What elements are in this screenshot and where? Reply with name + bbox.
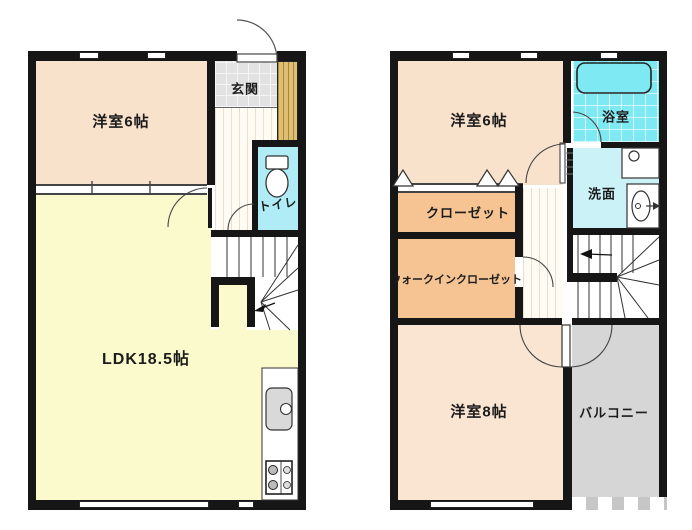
window	[238, 501, 254, 508]
wall-segment	[515, 184, 523, 257]
room-bath	[573, 61, 659, 142]
room-toilet	[258, 147, 298, 230]
wall-segment	[28, 51, 237, 61]
wall-segment	[659, 51, 667, 497]
label-closet: クローゼット	[426, 203, 510, 222]
wall-segment	[572, 318, 667, 325]
floorplan-canvas: 洋室6帖 玄関 トイレ LDK18.5帖 洋室6帖 浴室 洗面 クローゼット ウ…	[0, 0, 692, 530]
label-wic: ウォークインクローゼット	[390, 271, 522, 287]
wall-segment	[567, 148, 573, 228]
room-ldk-right	[211, 330, 298, 500]
window	[430, 501, 534, 508]
stair-arrow-2f	[580, 249, 612, 259]
wall-segment	[563, 367, 572, 500]
closet-partition-2f	[398, 183, 523, 193]
wall-segment	[390, 318, 562, 325]
wall-segment	[252, 140, 298, 147]
window	[600, 52, 618, 59]
wall-segment	[207, 59, 215, 185]
stair-arrow-1f	[254, 303, 275, 312]
balcony-rail	[572, 497, 667, 510]
hall-floor-2f	[523, 188, 563, 318]
sliding-partition-1f	[36, 184, 207, 195]
window	[452, 52, 470, 59]
label-bath: 浴室	[602, 107, 630, 126]
label-western6-2f: 洋室6帖	[450, 110, 507, 131]
window	[79, 501, 209, 508]
shoe-cabinet	[277, 61, 298, 142]
wall-segment	[211, 230, 298, 237]
door-leaf	[562, 325, 570, 367]
wall-segment	[390, 232, 523, 239]
wall-segment	[563, 59, 571, 143]
entrance-door-arc	[237, 20, 277, 60]
wall-segment	[247, 277, 255, 327]
label-genkan: 玄関	[231, 79, 259, 98]
wall-segment	[211, 277, 219, 327]
wall-segment	[601, 142, 659, 148]
label-ldk: LDK18.5帖	[102, 345, 190, 369]
label-western8: 洋室8帖	[450, 401, 507, 422]
wall-segment	[567, 273, 617, 282]
label-washroom: 洗面	[588, 184, 616, 203]
window	[147, 52, 166, 59]
wall-segment	[567, 235, 573, 278]
hall-floor-1f-upper	[215, 108, 277, 140]
label-western6-1f: 洋室6帖	[92, 111, 149, 132]
wall-segment	[515, 287, 523, 318]
wall-segment	[252, 140, 258, 237]
window	[79, 52, 99, 59]
wall-segment	[567, 228, 659, 235]
window	[520, 52, 538, 59]
hall-floor-1f	[215, 140, 252, 230]
ldk-understair-nook	[219, 285, 247, 330]
label-balcony: バルコニー	[579, 403, 649, 422]
wall-segment	[28, 51, 36, 510]
wall-segment	[298, 51, 306, 510]
